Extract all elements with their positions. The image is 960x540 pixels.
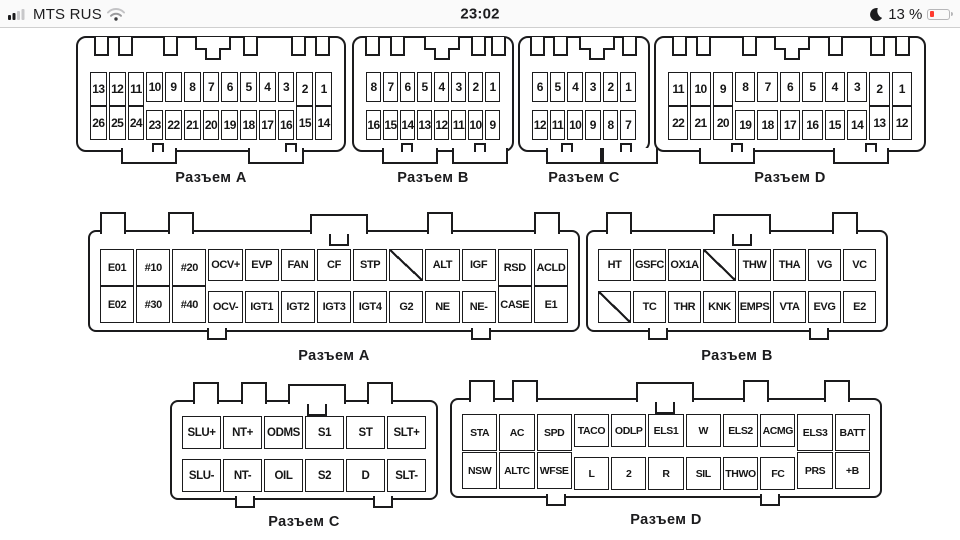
pin-cell: [389, 249, 423, 281]
pin-cell: 14: [315, 106, 332, 140]
status-bar-left: MTS RUS: [8, 0, 125, 28]
notch-shape: [152, 143, 164, 152]
pin-cell: THR: [668, 291, 701, 323]
pin-cell: CASE: [498, 286, 532, 323]
pin-cell: 9: [485, 110, 500, 140]
pin-cell: 4: [259, 72, 276, 102]
pin-cell: 15: [383, 110, 398, 140]
pin-cell: ST: [346, 416, 385, 449]
pin-cell: KNK: [703, 291, 736, 323]
connector-label: Разъем D: [654, 170, 926, 186]
pin-cell: 7: [203, 72, 220, 102]
latch-inner-shape: [784, 48, 800, 60]
tab-shape: [606, 212, 632, 234]
pin-cell: 2: [603, 72, 619, 102]
pin-cell: 8: [603, 110, 619, 140]
pin-cell: OCV+: [208, 249, 242, 281]
pin-grid: E01#10#20OCV+EVPFANCFSTPALTIGFRSDACLDE02…: [100, 249, 568, 323]
pin-cell: E02: [100, 286, 134, 323]
latch-inner-shape: [205, 48, 221, 60]
pin-cell: 10: [690, 72, 710, 106]
tab-shape: [824, 380, 850, 402]
connector-mid-b: HTGSFCOX1ATHWTHAVGVCTCTHRKNKEMPSVTAEVGE2…: [586, 230, 888, 364]
pin-cell: SIL: [686, 457, 721, 490]
pin-cell: [598, 291, 631, 323]
tab-shape: [469, 380, 495, 402]
connector-top-d: 11109876543212221201918171615141312 Разъ…: [654, 36, 926, 186]
pin-cell: 3: [585, 72, 601, 102]
pin-cell: #10: [136, 249, 170, 286]
tooth-shape: [491, 37, 506, 56]
pin-cell: SLU+: [182, 416, 221, 449]
pin-cell: 16: [366, 110, 381, 140]
pin-cell: NE-: [462, 291, 496, 323]
pin-cell: SPD: [537, 414, 572, 451]
notch-shape: [401, 143, 413, 152]
tab-shape: [288, 384, 346, 404]
tab-shape: [367, 382, 393, 404]
foot-shape: [648, 328, 668, 340]
foot-shape: [546, 494, 566, 506]
do-not-disturb-moon-icon: [868, 7, 883, 22]
connector-housing: SLU+NT+ODMSS1STSLT+SLU-NT-OILS2DSLT-: [170, 400, 438, 500]
pin-cell: E1: [534, 286, 568, 323]
pin-cell: ACMG: [760, 414, 795, 447]
pin-cell: 9: [585, 110, 601, 140]
latch-inner-shape: [589, 48, 605, 60]
pin-cell: 13: [90, 72, 107, 106]
pin-cell: 14: [847, 110, 867, 140]
pin-cell: 10: [146, 72, 163, 102]
pin-cell: 20: [203, 110, 220, 140]
pin-cell: 10: [468, 110, 483, 140]
pin-cell: 12: [434, 110, 449, 140]
pin-cell: ALT: [425, 249, 459, 281]
notch-shape: [865, 143, 877, 152]
foot-shape: [760, 494, 780, 506]
pin-cell: VTA: [773, 291, 806, 323]
pin-cell: 15: [296, 106, 313, 140]
pin-cell: IGT2: [281, 291, 315, 323]
pin-cell: 8: [366, 72, 381, 102]
pin-cell: GSFC: [633, 249, 666, 281]
notch-shape: [620, 143, 632, 152]
connector-label: Разъем A: [76, 170, 346, 186]
pin-cell: 9: [713, 72, 733, 106]
tab-shape: [310, 214, 368, 234]
pin-cell: 1: [315, 72, 332, 106]
connector-top-c: 654321121110987 Разъем C: [518, 36, 650, 186]
tab-shape: [427, 212, 453, 234]
wifi-icon: [107, 8, 125, 21]
pin-cell: PRS: [797, 452, 832, 489]
pin-grid: STAACSPDTACOODLPELS1WELS2ACMGELS3BATTNSW…: [462, 414, 870, 490]
pin-cell: 2: [611, 457, 646, 490]
pin-cell: 1: [892, 72, 912, 106]
carrier-label: MTS RUS: [33, 6, 102, 23]
tab-shape: [512, 380, 538, 402]
pin-cell: 26: [90, 106, 107, 140]
pin-cell: 1: [620, 72, 636, 102]
pin-cell: 8: [184, 72, 201, 102]
tooth-shape: [622, 37, 637, 56]
pin-cell: 2: [869, 72, 889, 106]
pin-cell: IGT1: [245, 291, 279, 323]
pin-cell: 6: [221, 72, 238, 102]
pin-cell: L: [574, 457, 609, 490]
pin-cell: IGF: [462, 249, 496, 281]
pin-cell: 4: [567, 72, 583, 102]
tooth-shape: [424, 37, 460, 50]
tooth-shape: [94, 37, 109, 56]
pin-cell: EVG: [808, 291, 841, 323]
pin-grid: 87654321161514131211109: [366, 72, 500, 140]
pin-cell: E2: [843, 291, 876, 323]
tooth-shape: [828, 37, 843, 56]
pin-cell: 13: [869, 106, 889, 140]
pin-cell: TC: [633, 291, 666, 323]
pin-cell: THWO: [723, 457, 758, 490]
connector-label: Разъем A: [88, 348, 580, 364]
pin-cell: TACO: [574, 414, 609, 447]
connector-top-b: 87654321161514131211109 Разъем B: [352, 36, 514, 186]
tooth-shape: [315, 37, 330, 56]
pin-cell: 11: [451, 110, 466, 140]
tab-shape: [832, 212, 858, 234]
pin-cell: 17: [780, 110, 800, 140]
pin-cell: 14: [400, 110, 415, 140]
connector-housing: 654321121110987: [518, 36, 650, 152]
notch-shape: [561, 143, 573, 152]
tooth-shape: [742, 37, 757, 56]
connector-label: Разъем D: [450, 512, 882, 528]
foot-shape: [833, 148, 889, 164]
tooth-shape: [163, 37, 178, 56]
pin-cell: IGT3: [317, 291, 351, 323]
pin-cell: +B: [835, 452, 870, 489]
pin-cell: 3: [847, 72, 867, 102]
foot-shape: [699, 148, 755, 164]
pin-cell: #30: [136, 286, 170, 323]
pin-grid: 654321121110987: [532, 72, 636, 140]
pin-cell: VG: [808, 249, 841, 281]
pin-cell: EVP: [245, 249, 279, 281]
pin-cell: ODMS: [264, 416, 303, 449]
notch-shape: [285, 143, 297, 152]
pin-cell: FC: [760, 457, 795, 490]
pin-cell: BATT: [835, 414, 870, 451]
pin-cell: 6: [400, 72, 415, 102]
pin-cell: 21: [690, 106, 710, 140]
tooth-shape: [774, 37, 810, 50]
clock: 23:02: [460, 5, 499, 22]
pin-cell: 18: [757, 110, 777, 140]
connector-label: Разъем C: [518, 170, 650, 186]
connector-housing: 87654321161514131211109: [352, 36, 514, 152]
tooth-shape: [895, 37, 910, 56]
pin-cell: 12: [532, 110, 548, 140]
pin-cell: 8: [735, 72, 755, 102]
foot-shape: [207, 328, 227, 340]
pin-cell: 24: [128, 106, 145, 140]
latch-inner-shape: [434, 48, 450, 60]
battery-fill: [930, 11, 934, 17]
pin-cell: 19: [221, 110, 238, 140]
connector-housing: HTGSFCOX1ATHWTHAVGVCTCTHRKNKEMPSVTAEVGE2: [586, 230, 888, 332]
pin-cell: 3: [278, 72, 295, 102]
pin-cell: 10: [567, 110, 583, 140]
pin-cell: 7: [757, 72, 777, 102]
pin-cell: 5: [550, 72, 566, 102]
cellular-signal-icon: [8, 8, 28, 20]
tooth-shape: [291, 37, 306, 56]
pin-grid: HTGSFCOX1ATHWTHAVGVCTCTHRKNKEMPSVTAEVGE2: [598, 249, 876, 323]
pin-cell: 2: [296, 72, 313, 106]
pin-cell: 16: [278, 110, 295, 140]
pin-cell: 15: [825, 110, 845, 140]
pin-grid: 11109876543212221201918171615141312: [668, 72, 912, 140]
pin-cell: #20: [172, 249, 206, 286]
tooth-shape: [118, 37, 133, 56]
battery-tip: [951, 12, 953, 16]
pin-cell: SLT-: [387, 459, 426, 492]
pin-cell: OCV-: [208, 291, 242, 323]
pin-cell: ELS1: [648, 414, 683, 447]
pin-cell: NT-: [223, 459, 262, 492]
connector-mid-a: E01#10#20OCV+EVPFANCFSTPALTIGFRSDACLDE02…: [88, 230, 580, 364]
pin-cell: SLT+: [387, 416, 426, 449]
tab-shape: [534, 212, 560, 234]
pin-cell: 5: [240, 72, 257, 102]
pin-cell: THA: [773, 249, 806, 281]
pin-cell: 17: [259, 110, 276, 140]
connector-label: Разъем B: [586, 348, 888, 364]
pin-grid: 1312111098765432126252423222120191817161…: [90, 72, 332, 140]
connector-housing: 1312111098765432126252423222120191817161…: [76, 36, 346, 152]
connector-top-a: 1312111098765432126252423222120191817161…: [76, 36, 346, 186]
foot-shape: [546, 148, 602, 164]
pin-cell: 7: [620, 110, 636, 140]
pin-cell: S2: [305, 459, 344, 492]
tab-shape: [713, 214, 771, 234]
pin-cell: 19: [735, 110, 755, 140]
pin-cell: 11: [550, 110, 566, 140]
pin-cell: E01: [100, 249, 134, 286]
tab-shape: [241, 382, 267, 404]
battery-icon: [927, 9, 950, 20]
pin-cell: 21: [184, 110, 201, 140]
tab-shape: [636, 382, 694, 402]
tab-shape: [743, 380, 769, 402]
battery-percent-label: 13 %: [888, 6, 922, 23]
connector-bot-c: SLU+NT+ODMSS1STSLT+SLU-NT-OILS2DSLT- Раз…: [170, 400, 438, 530]
connector-housing: 11109876543212221201918171615141312: [654, 36, 926, 152]
tab-shape: [100, 212, 126, 234]
pin-cell: STP: [353, 249, 387, 281]
pin-cell: ACLD: [534, 249, 568, 286]
pin-cell: G2: [389, 291, 423, 323]
pin-cell: RSD: [498, 249, 532, 286]
pin-cell: 6: [532, 72, 548, 102]
pin-cell: 11: [668, 72, 688, 106]
pin-cell: 4: [434, 72, 449, 102]
pin-cell: ODLP: [611, 414, 646, 447]
pin-cell: NT+: [223, 416, 262, 449]
tab-shape: [193, 382, 219, 404]
tooth-shape: [579, 37, 615, 50]
pin-cell: 7: [383, 72, 398, 102]
notch-shape: [474, 143, 486, 152]
pin-cell: STA: [462, 414, 497, 451]
pin-cell: 9: [165, 72, 182, 102]
foot-shape: [373, 496, 393, 508]
tooth-shape: [390, 37, 405, 56]
pin-cell: 23: [146, 110, 163, 140]
pin-cell: NE: [425, 291, 459, 323]
pin-cell: NSW: [462, 452, 497, 489]
foot-shape: [809, 328, 829, 340]
pin-cell: 6: [780, 72, 800, 102]
foot-shape: [121, 148, 177, 164]
tooth-shape: [530, 37, 545, 56]
pin-cell: 18: [240, 110, 257, 140]
pin-cell: OIL: [264, 459, 303, 492]
pin-cell: [703, 249, 736, 281]
pin-cell: 13: [417, 110, 432, 140]
tooth-shape: [672, 37, 687, 56]
pin-cell: D: [346, 459, 385, 492]
tooth-shape: [870, 37, 885, 56]
foot-shape: [235, 496, 255, 508]
connector-housing: STAACSPDTACOODLPELS1WELS2ACMGELS3BATTNSW…: [450, 398, 882, 498]
pin-cell: 2: [468, 72, 483, 102]
pin-cell: 12: [892, 106, 912, 140]
tooth-shape: [195, 37, 231, 50]
pin-cell: R: [648, 457, 683, 490]
connector-label: Разъем B: [352, 170, 514, 186]
pin-cell: 1: [485, 72, 500, 102]
pin-cell: FAN: [281, 249, 315, 281]
pin-cell: 4: [825, 72, 845, 102]
pin-cell: OX1A: [668, 249, 701, 281]
tab-shape: [168, 212, 194, 234]
tooth-shape: [471, 37, 486, 56]
pin-cell: THW: [738, 249, 771, 281]
pin-cell: VC: [843, 249, 876, 281]
pin-cell: #40: [172, 286, 206, 323]
pin-cell: HT: [598, 249, 631, 281]
pin-cell: 20: [713, 106, 733, 140]
pin-cell: SLU-: [182, 459, 221, 492]
status-bar-right: 13 %: [868, 0, 953, 28]
pin-cell: 12: [109, 72, 126, 106]
pin-cell: AC: [499, 414, 534, 451]
pin-cell: 16: [802, 110, 822, 140]
pin-cell: 22: [668, 106, 688, 140]
tooth-shape: [696, 37, 711, 56]
notch-shape: [731, 143, 743, 152]
pin-cell: CF: [317, 249, 351, 281]
pin-cell: IGT4: [353, 291, 387, 323]
pin-cell: 5: [417, 72, 432, 102]
tooth-shape: [243, 37, 258, 56]
pin-grid: SLU+NT+ODMSS1STSLT+SLU-NT-OILS2DSLT-: [182, 416, 426, 492]
pin-cell: 11: [128, 72, 145, 106]
foot-shape: [471, 328, 491, 340]
pin-cell: WFSE: [537, 452, 572, 489]
tooth-shape: [553, 37, 568, 56]
tooth-shape: [365, 37, 380, 56]
pin-cell: ELS2: [723, 414, 758, 447]
pin-cell: ALTC: [499, 452, 534, 489]
pin-cell: 25: [109, 106, 126, 140]
pin-cell: EMPS: [738, 291, 771, 323]
pin-cell: S1: [305, 416, 344, 449]
pin-cell: 5: [802, 72, 822, 102]
pin-cell: 3: [451, 72, 466, 102]
status-bar: MTS RUS 23:02 13 %: [0, 0, 960, 28]
pin-cell: W: [686, 414, 721, 447]
connector-label: Разъем C: [170, 514, 438, 530]
pin-cell: 22: [165, 110, 182, 140]
connector-bot-d: STAACSPDTACOODLPELS1WELS2ACMGELS3BATTNSW…: [450, 398, 882, 528]
screen: MTS RUS 23:02 13 % 131211109876543212625…: [0, 0, 960, 540]
connector-housing: E01#10#20OCV+EVPFANCFSTPALTIGFRSDACLDE02…: [88, 230, 580, 332]
pin-cell: ELS3: [797, 414, 832, 451]
